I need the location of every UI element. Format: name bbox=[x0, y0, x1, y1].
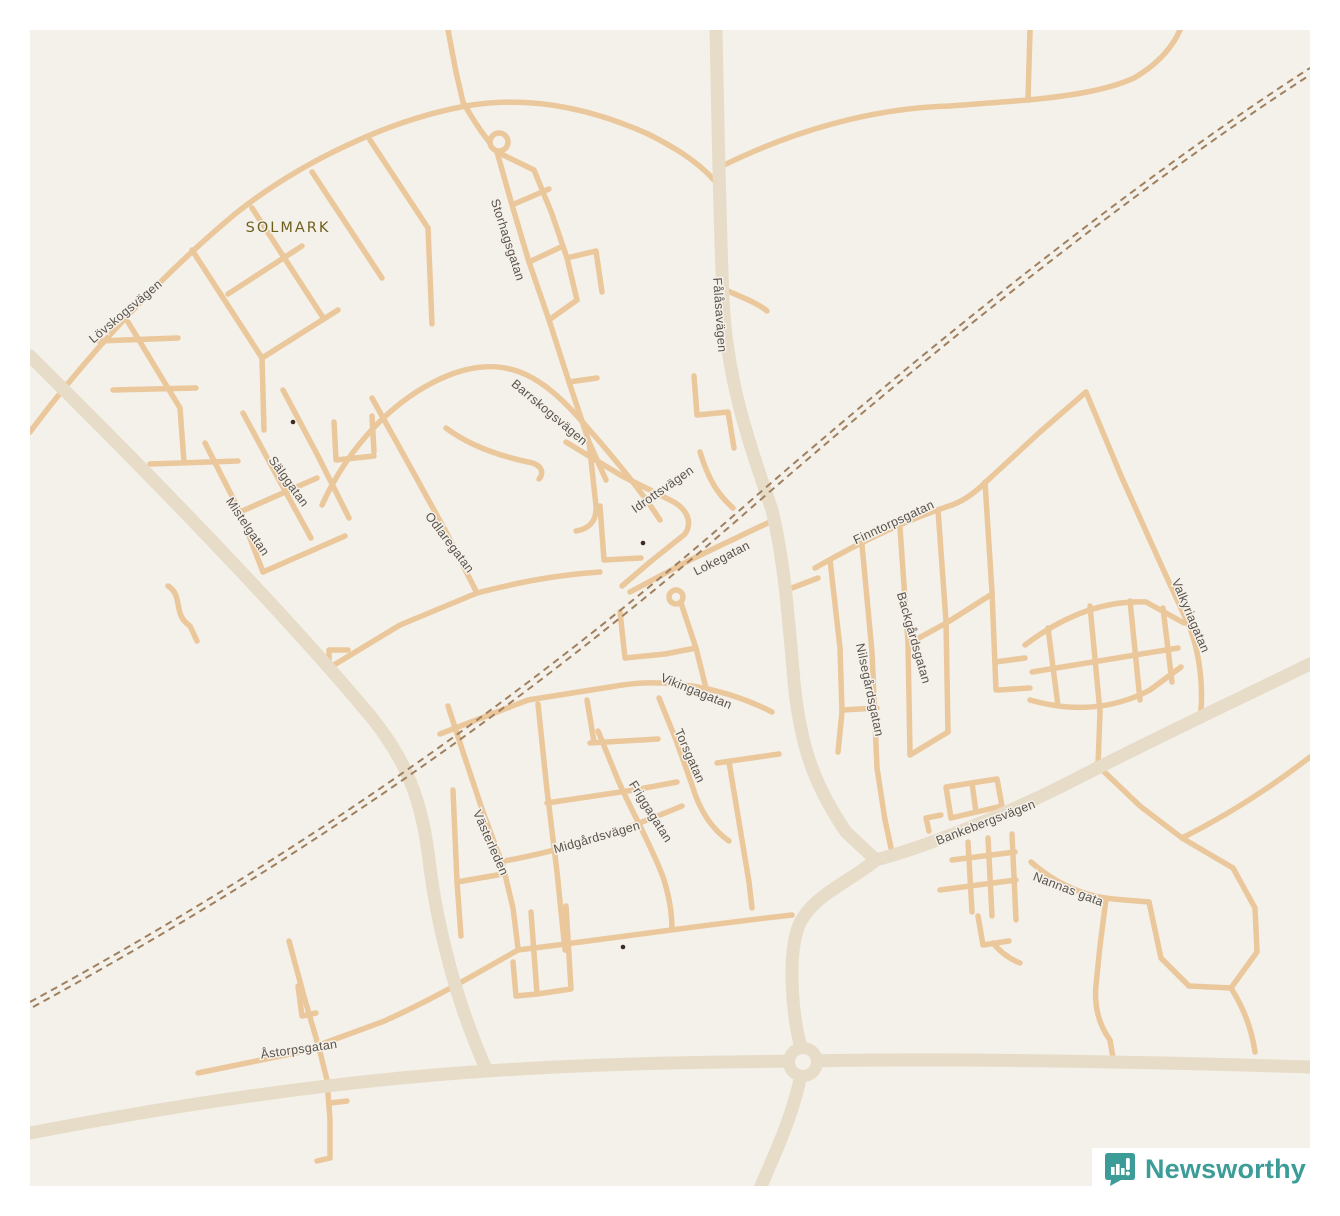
loop-knob bbox=[490, 133, 508, 151]
road-segment bbox=[1028, 30, 1030, 100]
poi-dot bbox=[291, 420, 296, 425]
mini-roundabout bbox=[669, 590, 683, 604]
map-canvas[interactable]: LövskogsvägenStorhagsgatanFålåsavägenBar… bbox=[0, 0, 1340, 1216]
road-segment bbox=[1098, 712, 1100, 766]
roundabout bbox=[789, 1048, 817, 1076]
road-segment bbox=[150, 461, 238, 464]
newsworthy-logo-icon bbox=[1104, 1152, 1136, 1187]
poi-dot bbox=[621, 945, 626, 950]
attribution-badge[interactable]: Newsworthy bbox=[1092, 1148, 1310, 1193]
road-segment bbox=[113, 388, 196, 390]
brand-name: Newsworthy bbox=[1145, 1154, 1306, 1185]
map-background bbox=[30, 30, 1310, 1186]
poi-dot bbox=[641, 541, 646, 546]
locality-label: SOLMARK bbox=[246, 220, 331, 236]
map-viewport[interactable]: LövskogsvägenStorhagsgatanFålåsavägenBar… bbox=[0, 0, 1340, 1216]
road-segment bbox=[99, 338, 178, 341]
